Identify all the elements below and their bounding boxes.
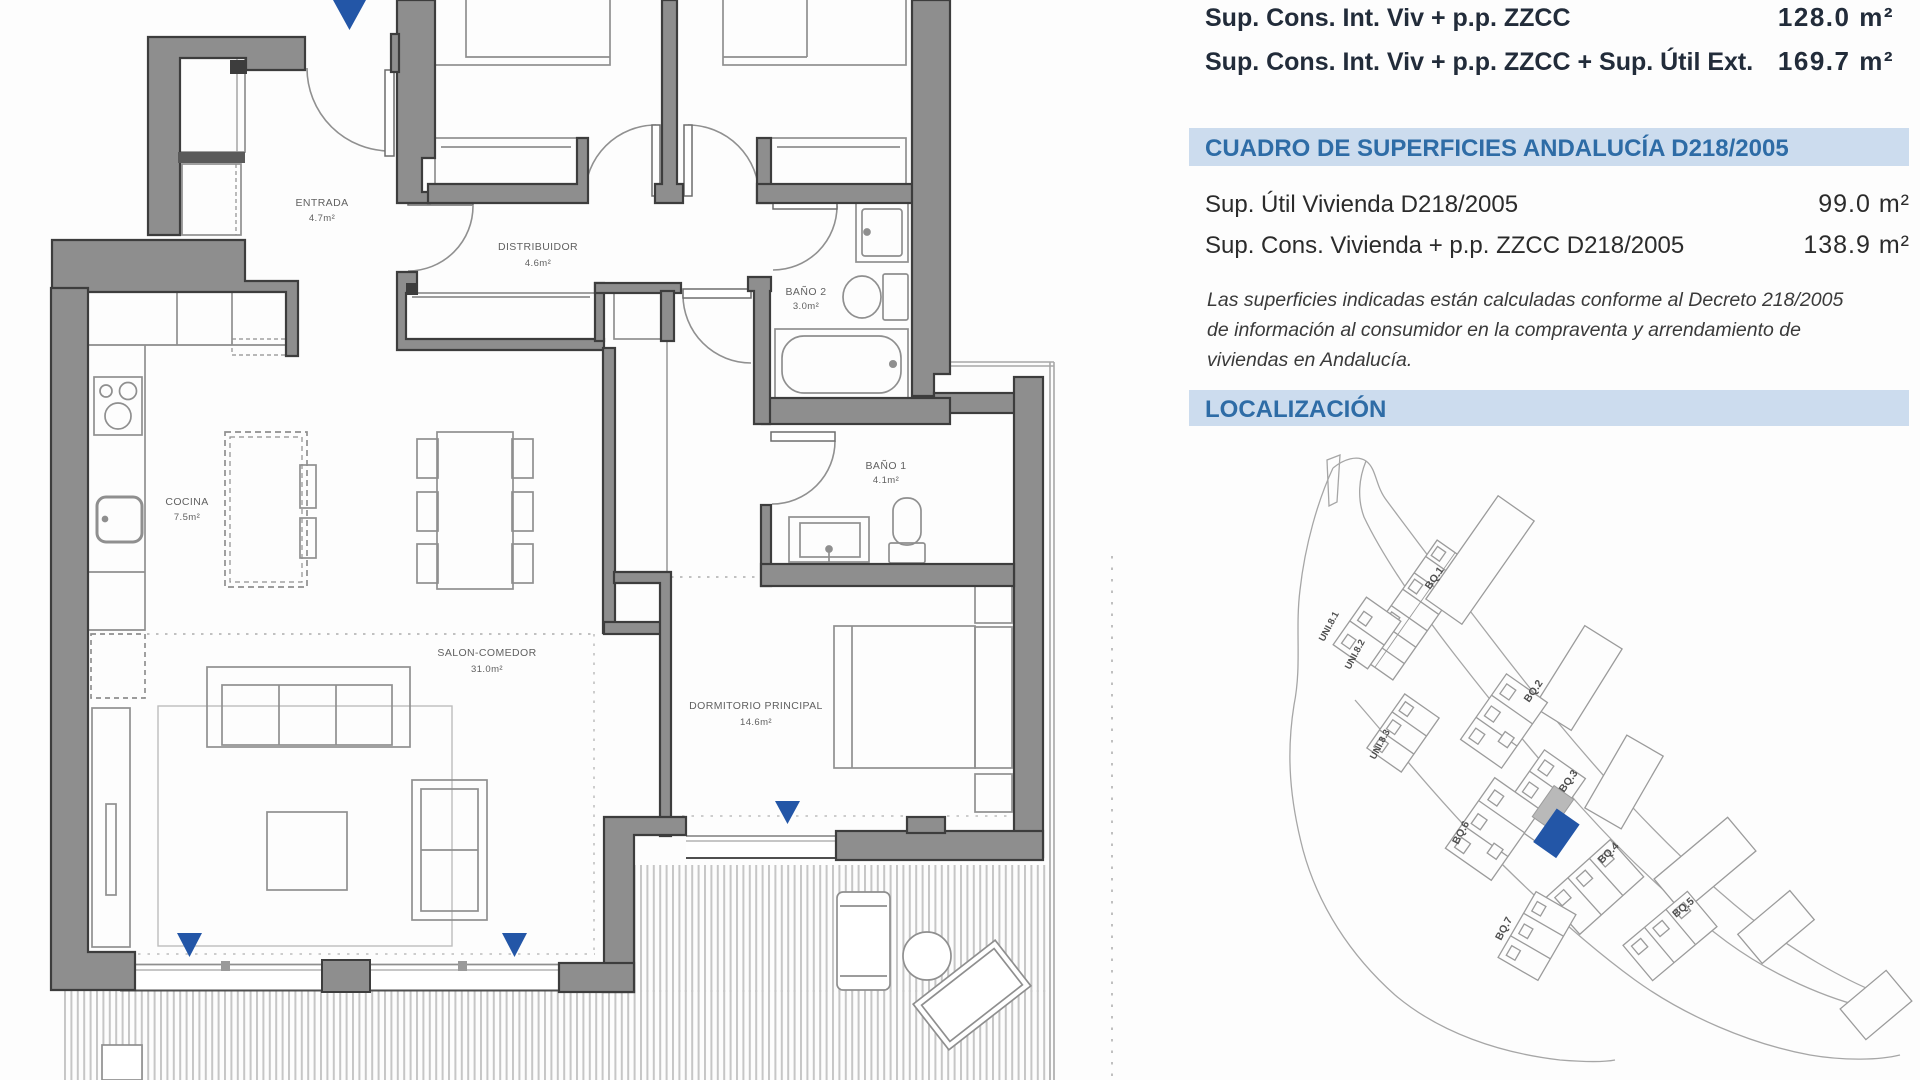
svg-text:169.7 m²: 169.7 m² xyxy=(1778,46,1894,76)
svg-text:3.0m²: 3.0m² xyxy=(793,301,819,312)
svg-text:viviendas en Andalucía.: viviendas en Andalucía. xyxy=(1207,349,1412,371)
svg-text:CUADRO DE SUPERFICIES ANDALUCÍ: CUADRO DE SUPERFICIES ANDALUCÍA D218/200… xyxy=(1205,134,1789,162)
svg-text:Sup. Cons. Int. Viv + p.p. ZZC: Sup. Cons. Int. Viv + p.p. ZZCC xyxy=(1205,4,1571,32)
svg-text:4.6m²: 4.6m² xyxy=(525,258,551,269)
svg-text:de información al consumidor e: de información al consumidor en la compr… xyxy=(1207,319,1801,341)
svg-text:ENTRADA: ENTRADA xyxy=(296,197,349,209)
svg-text:Sup. Útil Vivienda D218/2005: Sup. Útil Vivienda D218/2005 xyxy=(1205,191,1518,218)
svg-text:7.5m²: 7.5m² xyxy=(174,512,200,523)
svg-text:Sup. Cons. Vivienda + p.p. ZZC: Sup. Cons. Vivienda + p.p. ZZCC D218/200… xyxy=(1205,232,1684,259)
svg-text:Sup. Cons. Int. Viv + p.p. ZZC: Sup. Cons. Int. Viv + p.p. ZZCC + Sup. Ú… xyxy=(1205,46,1753,76)
svg-text:128.0 m²: 128.0 m² xyxy=(1778,2,1894,32)
svg-text:DORMITORIO PRINCIPAL: DORMITORIO PRINCIPAL xyxy=(689,700,823,712)
svg-text:Las superficies indicadas está: Las superficies indicadas están calculad… xyxy=(1207,289,1843,311)
svg-text:4.1m²: 4.1m² xyxy=(873,475,899,486)
svg-text:BAÑO 2: BAÑO 2 xyxy=(786,285,827,298)
svg-text:31.0m²: 31.0m² xyxy=(471,664,503,675)
svg-text:4.7m²: 4.7m² xyxy=(309,213,335,224)
svg-text:138.9 m²: 138.9 m² xyxy=(1803,231,1910,259)
svg-text:BAÑO 1: BAÑO 1 xyxy=(866,459,907,472)
svg-text:14.6m²: 14.6m² xyxy=(740,717,772,728)
svg-text:99.0 m²: 99.0 m² xyxy=(1818,190,1910,218)
svg-text:DISTRIBUIDOR: DISTRIBUIDOR xyxy=(498,241,578,253)
svg-text:COCINA: COCINA xyxy=(165,496,208,508)
svg-text:SALON-COMEDOR: SALON-COMEDOR xyxy=(437,647,536,659)
svg-text:LOCALIZACIÓN: LOCALIZACIÓN xyxy=(1205,395,1386,423)
